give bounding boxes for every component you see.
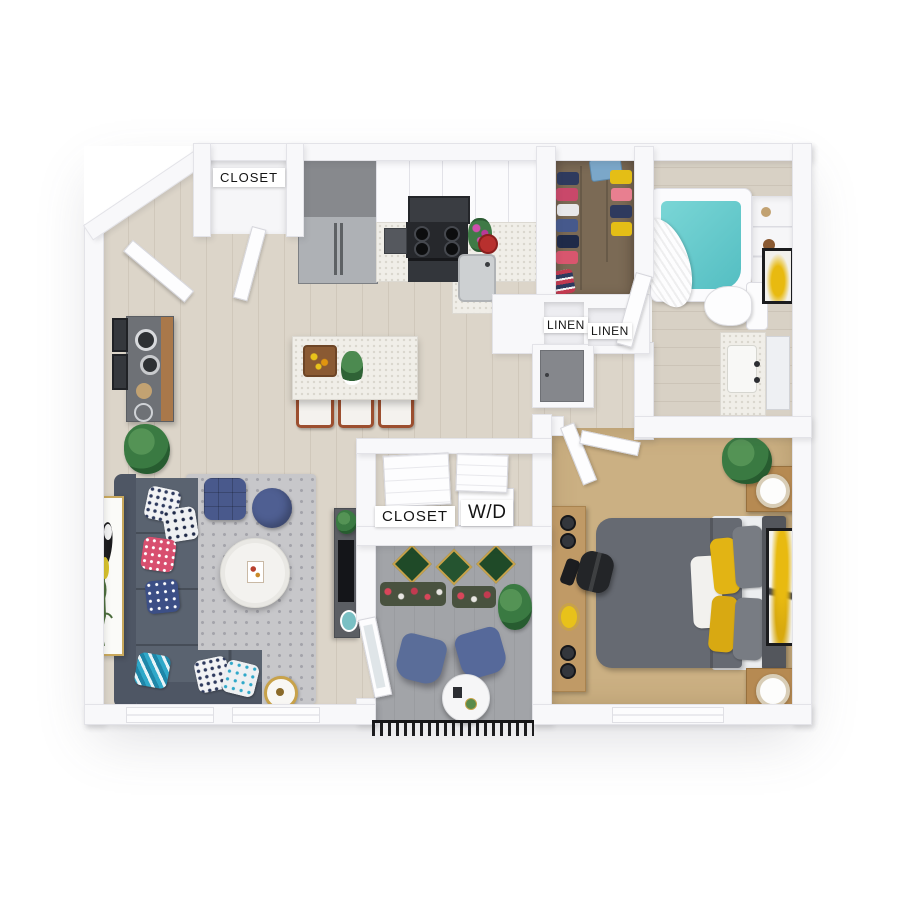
laundry-closet-door: [383, 452, 452, 507]
living-window: [232, 707, 320, 723]
island-flower-vase: [341, 351, 363, 385]
table-tray: [247, 561, 264, 583]
utility-door: [540, 350, 584, 402]
square-pouf: [204, 478, 246, 520]
toiletry-item: [761, 207, 771, 217]
bathtub: [650, 188, 752, 302]
closet-nook-wall-left: [193, 143, 211, 237]
coffee-table: [220, 538, 290, 608]
wall-left: [84, 224, 104, 725]
faucet: [485, 262, 490, 267]
fridge-handle: [340, 223, 343, 275]
decor-bowl: [135, 329, 157, 351]
wd-closet-door: [455, 453, 508, 493]
vanity-faucet: [754, 361, 760, 367]
flower-box: [380, 582, 446, 606]
patio-table: [442, 674, 490, 722]
linen-label-right: LINEN: [588, 323, 632, 339]
vanity-sink: [727, 345, 757, 393]
clothes-item: [557, 204, 579, 216]
burner: [414, 226, 430, 242]
living-window: [126, 707, 214, 723]
desk-gold-bowl: [558, 603, 580, 631]
bed: [596, 516, 792, 670]
burner: [444, 241, 460, 257]
desk-speaker: [560, 663, 576, 679]
wall-laundry-north: [356, 438, 552, 454]
balcony-plant: [498, 584, 532, 630]
nightstand-lamp: [756, 474, 790, 508]
decor-plate: [136, 383, 152, 399]
wall-frame: [112, 318, 128, 352]
door-handle: [545, 373, 549, 377]
bed-pillow-gray: [732, 525, 766, 589]
console-plant: [336, 510, 357, 534]
entry-console-table: [126, 316, 174, 422]
refrigerator: [298, 158, 378, 284]
lamp-bulb: [276, 688, 284, 696]
throw-pillow: [144, 578, 180, 614]
desk-speaker: [560, 533, 576, 549]
throw-pillow: [133, 651, 171, 689]
closet-rod: [580, 166, 582, 290]
walkin-closet-contents: [554, 158, 634, 300]
throw-pillow: [162, 506, 200, 544]
floor-plan-3d: CLOSET LINEN LINEN CLOSET W/D: [0, 0, 900, 900]
nightstand-lamp: [756, 674, 790, 708]
washer-dryer-label: W/D: [461, 500, 513, 526]
desk-speaker: [560, 515, 576, 531]
flower-box: [452, 586, 496, 608]
console-wood-side: [161, 317, 173, 421]
table-plant-pot: [465, 698, 477, 710]
fridge-upper-cabinet: [299, 159, 377, 217]
table-book: [453, 687, 462, 698]
burner: [414, 241, 430, 257]
clothes-item: [610, 170, 632, 184]
balcony-railing: [372, 720, 534, 736]
wall-laundry-south: [356, 526, 552, 546]
vanity-counter: [720, 332, 766, 416]
round-pouf: [252, 488, 292, 528]
wall-bath-west-upper: [634, 146, 654, 278]
fruit-bowl: [478, 234, 498, 254]
throw-pillow: [140, 536, 177, 573]
decor-ring: [134, 403, 153, 422]
closet-nook-wall-right: [286, 143, 304, 237]
tv-screen: [338, 540, 354, 602]
wall-bath-south: [634, 416, 812, 438]
vanity-mirror: [766, 336, 790, 410]
clothes-item: [611, 222, 632, 236]
clothes-item: [556, 251, 578, 264]
kitchen-sink: [458, 254, 496, 302]
vanity-faucet: [754, 377, 760, 383]
bed-pillow-gray: [732, 597, 765, 660]
laundry-closet-label: CLOSET: [375, 506, 455, 527]
entry-plant: [124, 424, 170, 474]
wall-frame: [112, 354, 128, 390]
toilet-bowl: [704, 286, 752, 326]
bedroom-window: [612, 707, 724, 723]
wall-walkin-west: [536, 146, 556, 318]
kitchen-island: [292, 336, 418, 400]
bedroom-desk: [550, 506, 586, 692]
closet-rod: [606, 166, 608, 262]
fridge-handle: [334, 223, 337, 275]
serving-tray: [303, 345, 337, 377]
decor-bowl: [140, 355, 160, 375]
microwave: [408, 196, 470, 224]
clothes-item: [610, 205, 632, 218]
clothes-item: [556, 219, 578, 232]
clothes-item: [557, 235, 579, 248]
bathroom-art: [762, 248, 794, 304]
clothes-item: [611, 188, 632, 201]
clothes-item: [556, 188, 578, 201]
burner: [444, 226, 460, 242]
wall-bedroom-west: [532, 414, 552, 725]
clothes-item: [557, 172, 579, 185]
cooktop: [406, 222, 468, 258]
entry-closet-label: CLOSET: [213, 168, 285, 187]
linen-label-left: LINEN: [544, 317, 588, 333]
desk-speaker: [560, 645, 576, 661]
coffee-maker: [384, 228, 407, 254]
